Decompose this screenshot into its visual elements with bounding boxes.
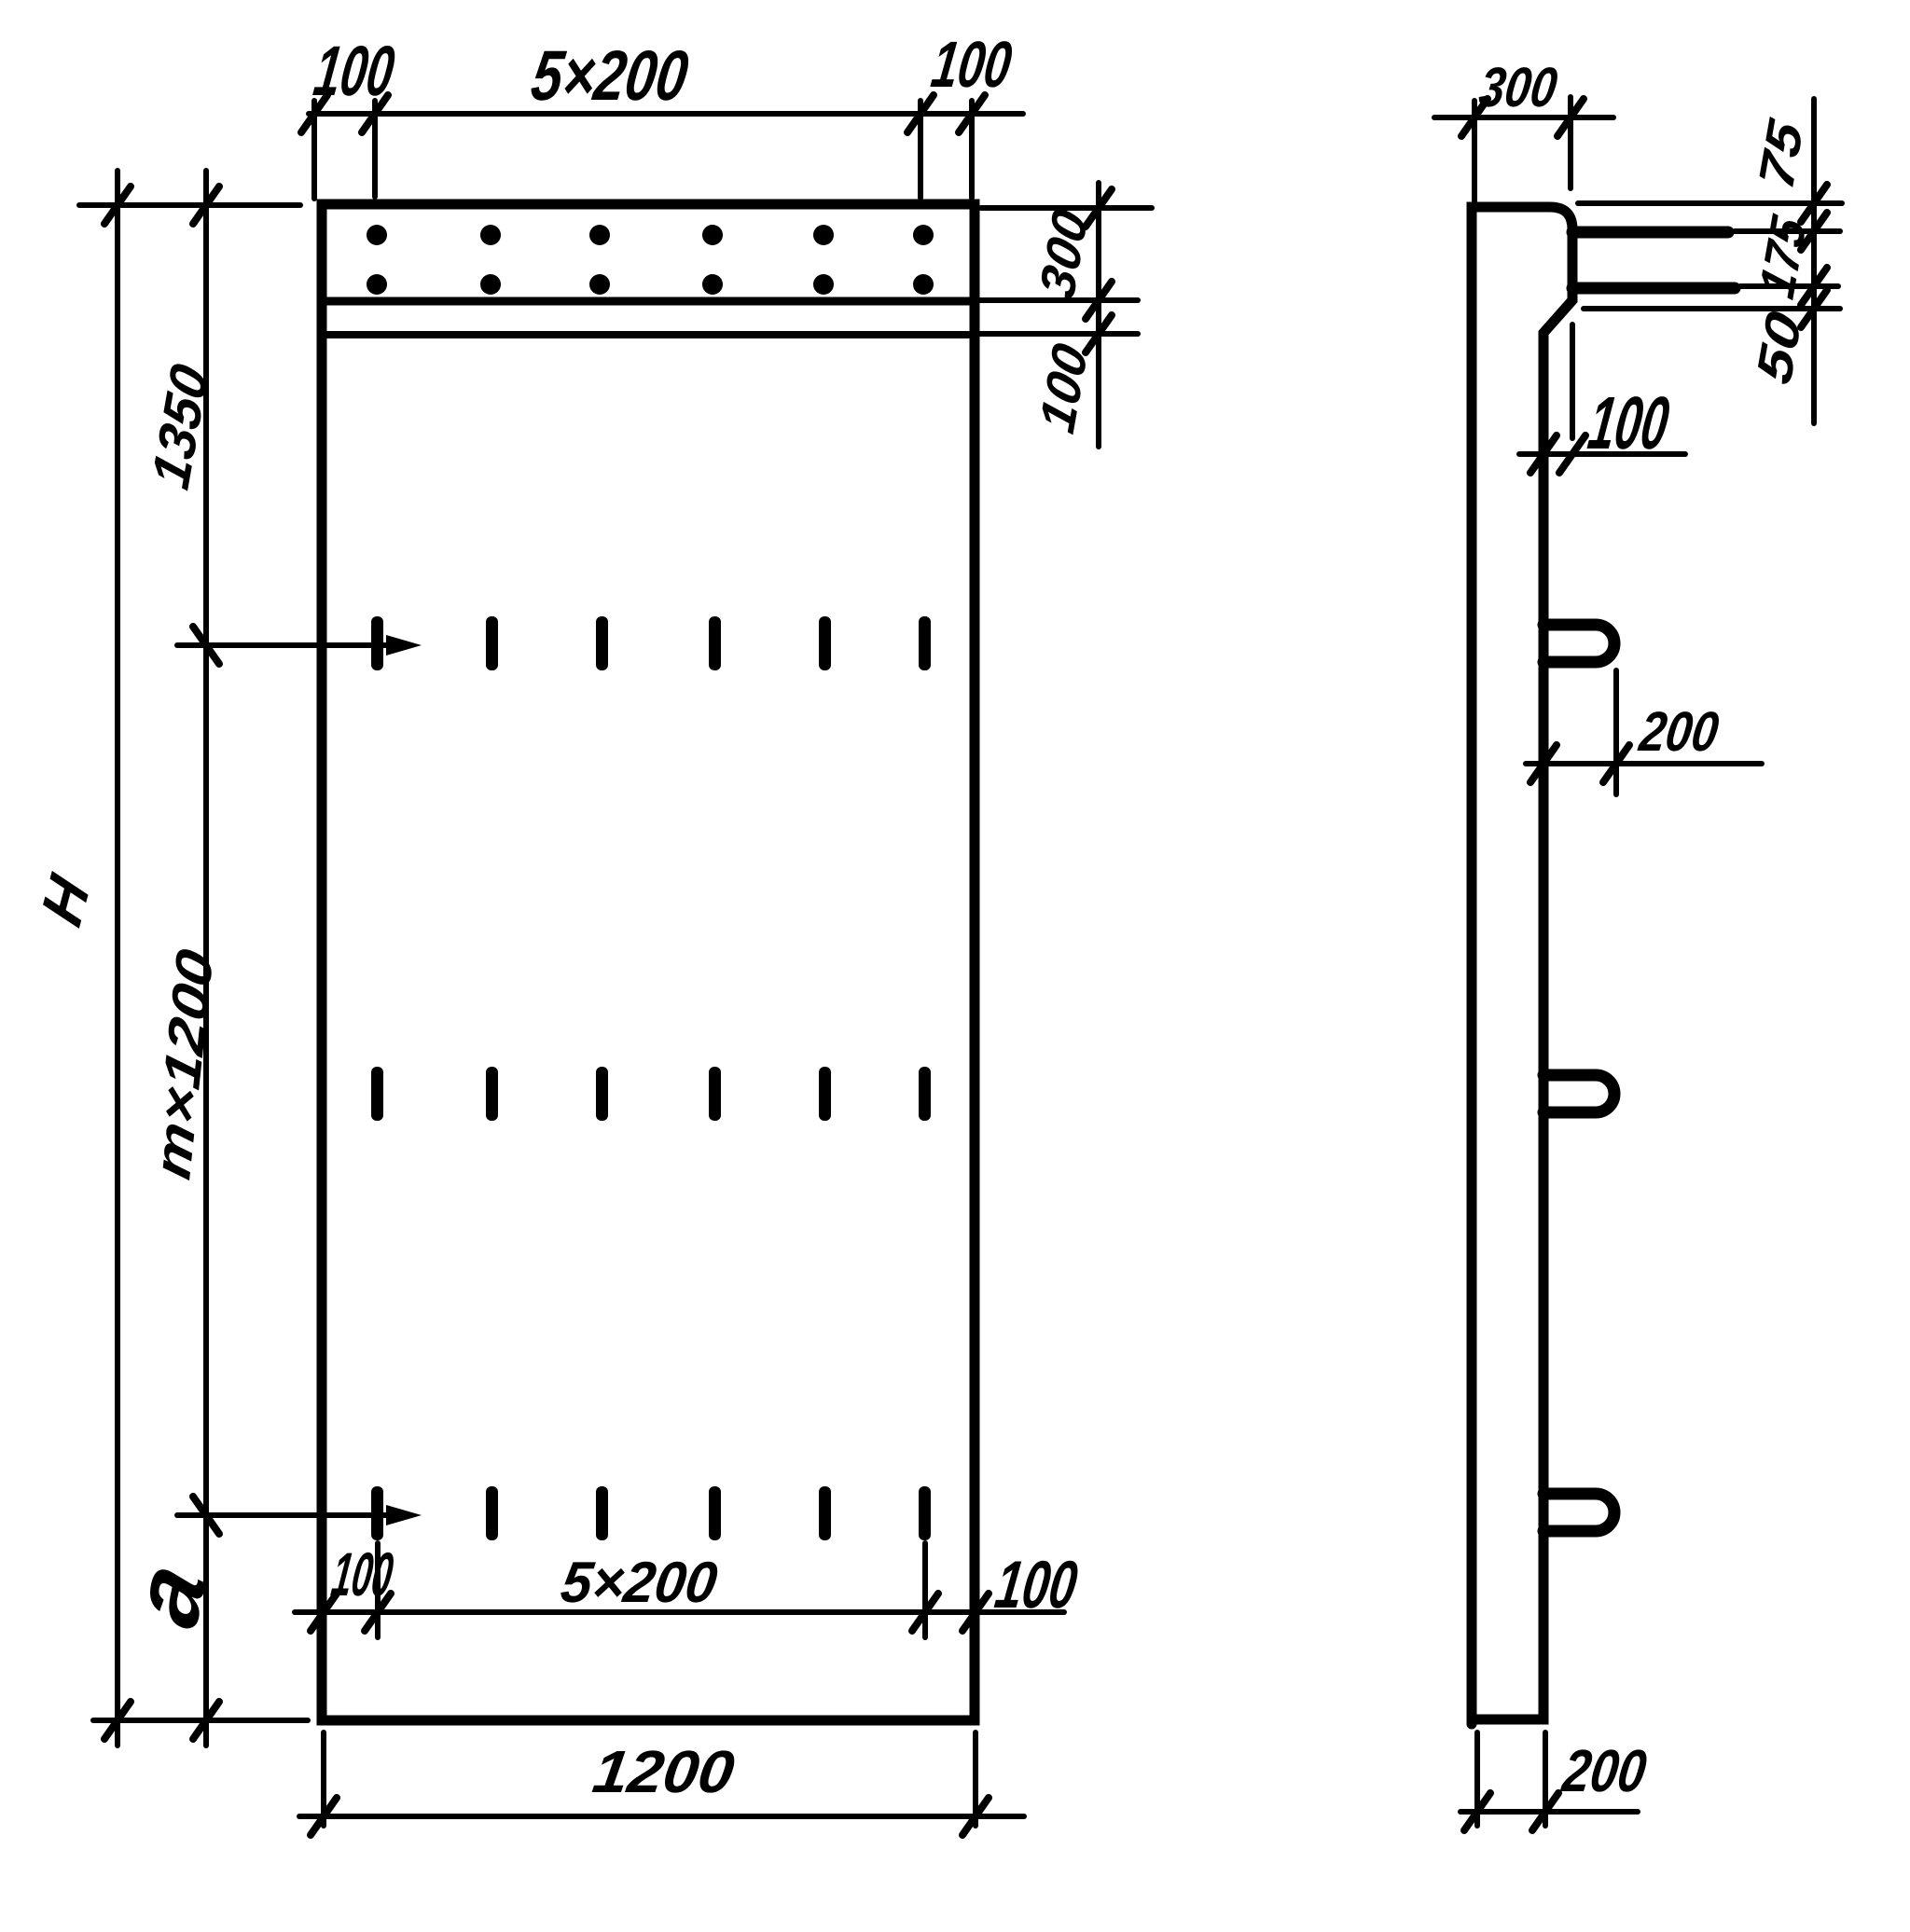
svg-text:100: 100 [310, 32, 399, 111]
svg-text:5×200: 5×200 [527, 36, 693, 116]
svg-text:1200: 1200 [589, 1738, 739, 1805]
svg-text:5×200: 5×200 [557, 1551, 721, 1615]
svg-text:100: 100 [927, 27, 1016, 101]
svg-text:200: 200 [1558, 1737, 1651, 1804]
svg-text:200: 200 [1635, 699, 1722, 763]
svg-text:300: 300 [1475, 55, 1561, 118]
svg-text:100: 100 [991, 1548, 1082, 1622]
svg-text:100: 100 [327, 1540, 396, 1609]
svg-text:100: 100 [1584, 381, 1674, 465]
